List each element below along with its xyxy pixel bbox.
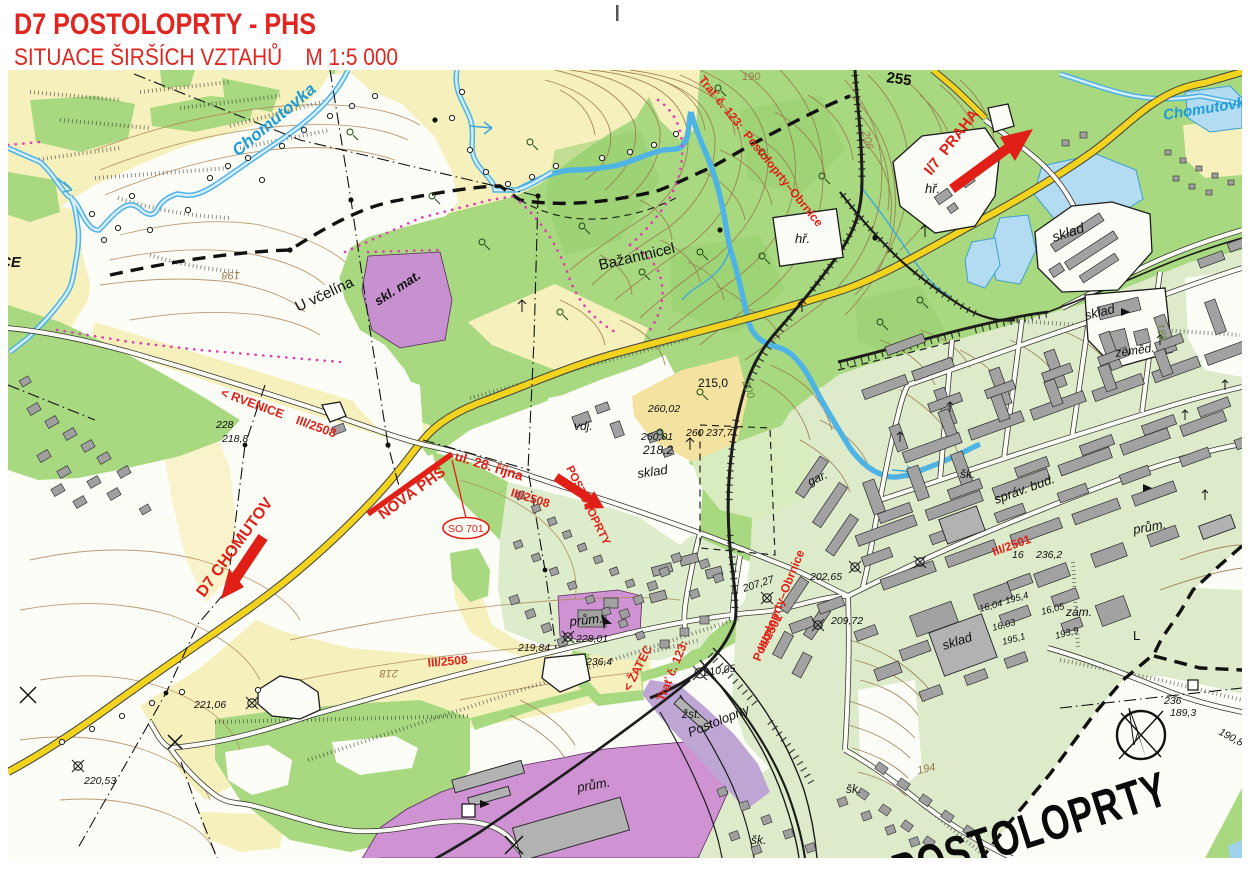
svg-text:L: L	[1133, 628, 1140, 643]
svg-text:hř.: hř.	[795, 231, 810, 246]
svg-text:šk.: šk.	[751, 833, 766, 847]
svg-text:šk.: šk.	[960, 467, 975, 481]
svg-text:190: 190	[742, 71, 761, 83]
svg-text:220,53: 220,53	[83, 775, 116, 787]
svg-text:237,7: 237,7	[705, 427, 733, 439]
svg-text:189,3: 189,3	[1170, 707, 1196, 719]
svg-text:260,02: 260,02	[647, 403, 680, 415]
svg-text:221,06: 221,06	[193, 699, 226, 711]
svg-text:202,65: 202,65	[809, 571, 842, 583]
svg-text:228: 228	[215, 419, 234, 431]
svg-text:D7 POSTOLOPRTY - PHS: D7 POSTOLOPRTY - PHS	[14, 8, 316, 41]
svg-text:šk.: šk.	[846, 782, 861, 796]
svg-text:260,01: 260,01	[640, 431, 673, 443]
svg-text:209,72: 209,72	[830, 615, 863, 627]
svg-text:hř.: hř.	[925, 181, 940, 196]
svg-text:218: 218	[379, 667, 399, 679]
svg-text:236,4: 236,4	[585, 656, 612, 668]
svg-text:236: 236	[1163, 695, 1182, 707]
svg-text:219,84: 219,84	[517, 642, 550, 654]
svg-text:218,2: 218,2	[642, 443, 673, 457]
svg-text:255: 255	[885, 69, 912, 89]
svg-text:218,8: 218,8	[221, 433, 248, 445]
svg-text:260: 260	[685, 427, 704, 439]
svg-text:žst.: žst.	[681, 707, 701, 721]
svg-text:vdj.: vdj.	[574, 419, 593, 433]
svg-text:228,01: 228,01	[575, 633, 608, 645]
svg-text:SITUACE ŠIRŠÍCH VZTAHŮ M 1:: SITUACE ŠIRŠÍCH VZTAHŮ M 1:5 000	[14, 42, 398, 71]
svg-text:198: 198	[221, 269, 240, 281]
svg-text:236,2: 236,2	[1035, 549, 1062, 561]
svg-text:SO 701: SO 701	[448, 523, 484, 535]
svg-text:215,0: 215,0	[698, 376, 728, 390]
svg-text:zám.: zám.	[1065, 605, 1092, 619]
